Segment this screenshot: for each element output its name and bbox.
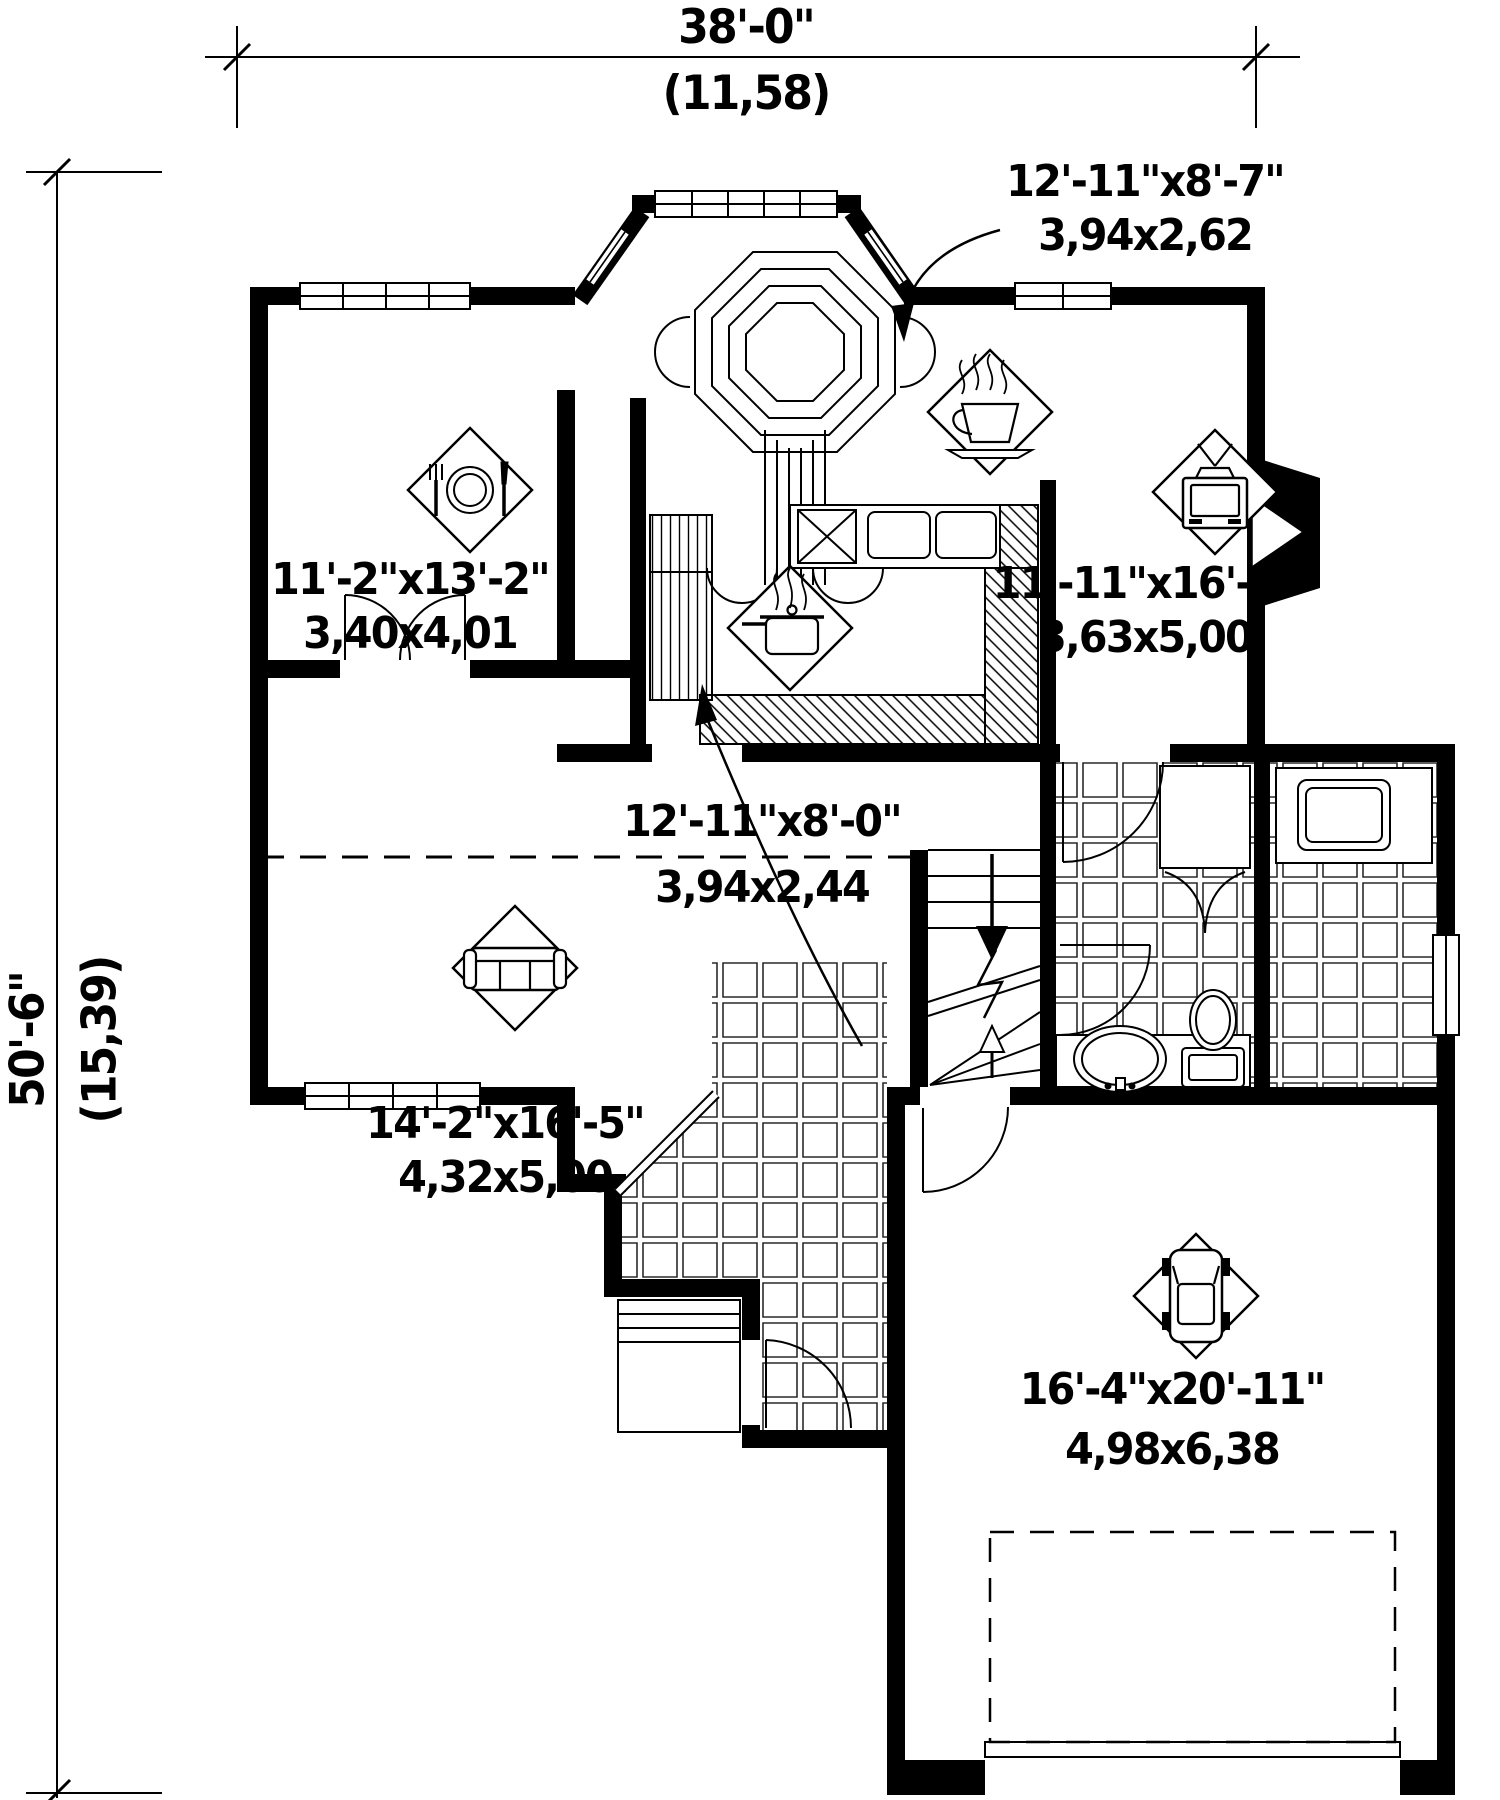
- dining-size-imperial: 11'-2"x13'-2": [271, 558, 549, 602]
- car-icon: [1134, 1234, 1258, 1358]
- dishwasher: [798, 510, 856, 563]
- laundry-sink: [1276, 768, 1432, 863]
- sofa-icon: [453, 906, 577, 1030]
- coffee-cup-icon: [928, 350, 1052, 474]
- dinette-size-imperial: 12'-11"x8'-7": [1006, 160, 1284, 204]
- living-window: [1015, 283, 1111, 309]
- stairs-up-arrow: [980, 1026, 1004, 1078]
- garage-door: [985, 1742, 1400, 1757]
- garage-door-header-dashed: [990, 1532, 1395, 1742]
- laundry-window: [1433, 935, 1459, 1035]
- left-dimension-imperial: 50'-6": [5, 972, 52, 1108]
- stairs-down-arrow: [976, 854, 1008, 960]
- garage-size-imperial: 16'-4"x20'-11": [1020, 1368, 1325, 1412]
- cutlery-plate-icon: [408, 428, 532, 552]
- hall-size-imperial: 12'-11"x8'-0": [623, 800, 901, 844]
- top-dimension-metric: (11,58): [663, 70, 830, 117]
- top-dimension-imperial: 38'-0": [678, 4, 814, 51]
- dining-size-metric: 3,40x4,01: [303, 612, 517, 656]
- staircase: [928, 850, 1040, 1085]
- dinette-size-metric: 3,94x2,62: [1038, 214, 1252, 258]
- living-size-imperial: 11'-11"x16'-5": [993, 562, 1298, 606]
- hall-size-met ric: 3,94x2,44: [655, 866, 869, 910]
- family-size-imperial: 14'-2"x16'-5": [366, 1102, 644, 1146]
- front-porch: [618, 1300, 740, 1432]
- floor-plan-canvas: 38'-0" (11,58) 50'-6" (15,39) 12'-11"x8'…: [0, 0, 1500, 1800]
- bay-window-walls: [580, 212, 913, 300]
- cooking-pot-icon: [728, 566, 852, 690]
- family-size-metric: 4,32x5,00: [398, 1156, 612, 1200]
- garage-entry-door: [923, 1107, 1008, 1192]
- garage-size-metric: 4,98x6,38: [1065, 1428, 1279, 1472]
- left-dimension-metric: (15,39): [77, 957, 124, 1124]
- living-size-metric: 3,63x5,00: [1038, 616, 1252, 660]
- bay-front-window: [655, 191, 837, 217]
- dining-window: [300, 283, 470, 309]
- bay-side-windows: [590, 232, 903, 282]
- pantry: [650, 515, 712, 700]
